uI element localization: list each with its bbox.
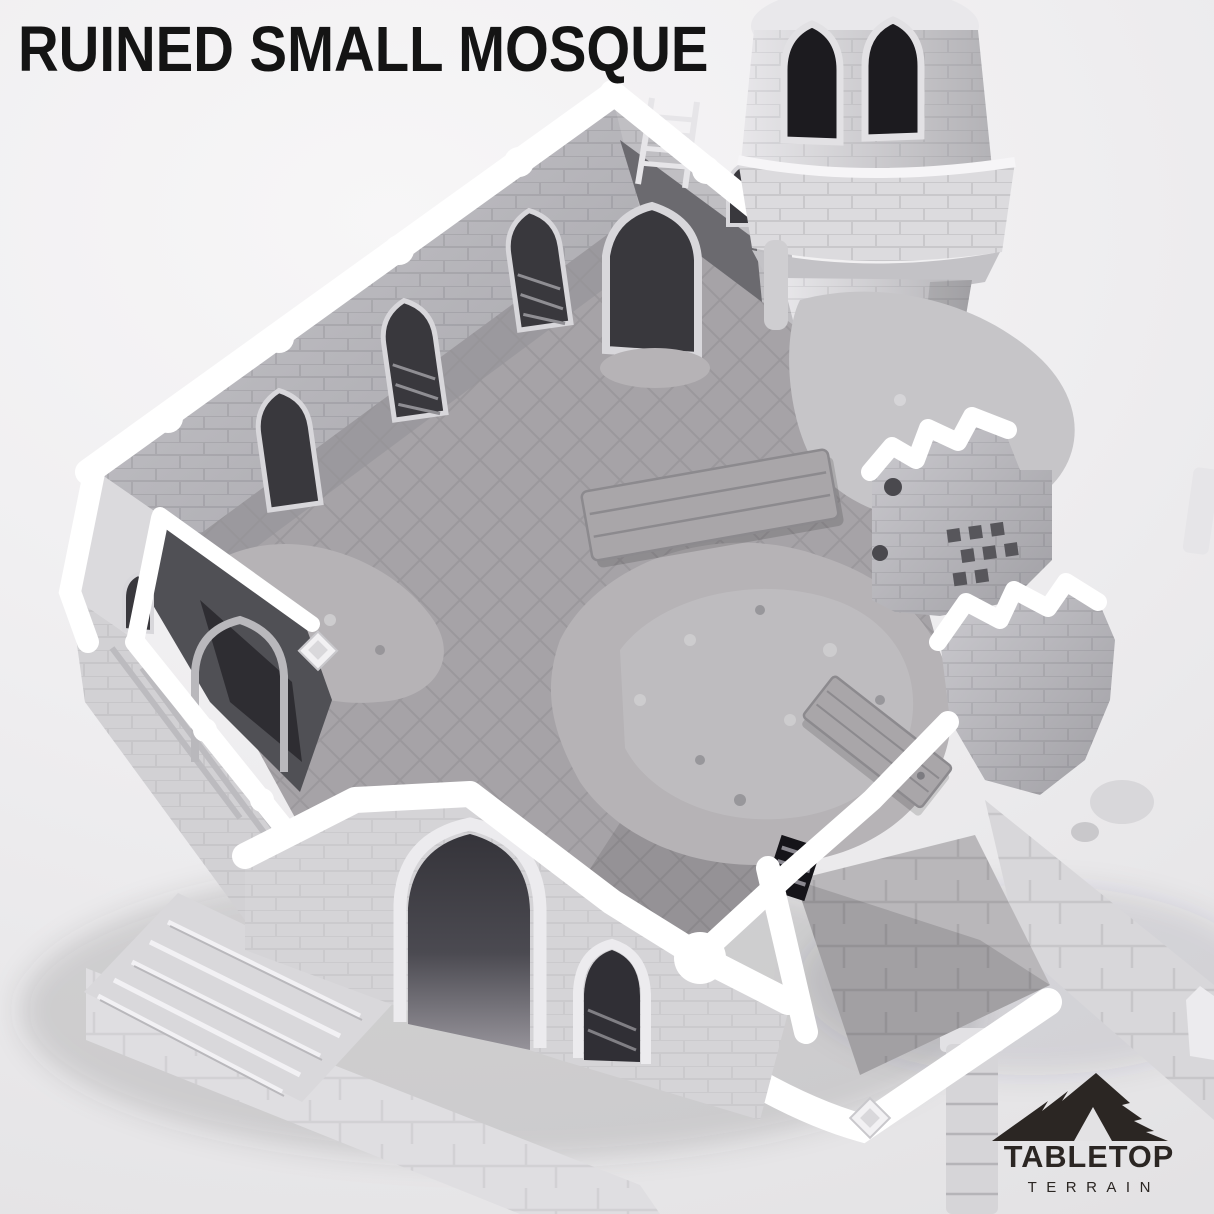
rubble-stone xyxy=(695,755,705,765)
lattice-hole xyxy=(946,528,961,543)
rubble-stone xyxy=(324,614,336,626)
brand-logo: TABLETOP TERRAIN xyxy=(978,1061,1200,1196)
pillar-cap xyxy=(692,156,720,184)
lattice-hole xyxy=(982,545,997,560)
peg-hole xyxy=(872,545,888,561)
lattice-hole xyxy=(990,522,1005,537)
broken-post xyxy=(1186,986,1214,1060)
wall-fragment-b xyxy=(938,580,1115,795)
rubble-stone xyxy=(875,695,885,705)
facade-window-opening xyxy=(584,950,640,1062)
corner-blob xyxy=(674,932,726,984)
brand-subname: TERRAIN xyxy=(988,1179,1201,1196)
rock xyxy=(1071,822,1099,842)
pillar-cap xyxy=(153,403,183,433)
lattice-hole xyxy=(974,569,989,584)
page-title: RUINED SMALL MOSQUE xyxy=(18,12,708,86)
pillar-cap xyxy=(193,718,217,742)
rubble-stone xyxy=(375,645,385,655)
rubble-stone xyxy=(684,634,696,646)
main-door-opening xyxy=(408,834,530,1050)
rubble-stone xyxy=(755,605,765,615)
rubble-stone xyxy=(634,694,646,706)
pillar-cap xyxy=(264,323,294,353)
pillar-cap xyxy=(504,147,534,177)
door-rubble xyxy=(600,348,710,388)
peg-hole xyxy=(884,478,902,496)
mosque-render xyxy=(0,0,1214,1214)
tower-window xyxy=(784,24,840,142)
rubble-stone xyxy=(894,394,906,406)
lattice-hole xyxy=(968,525,983,540)
product-image: RUINED SMALL MOSQUE TABLETOP TERRAIN xyxy=(0,0,1214,1214)
rubble-stone xyxy=(784,714,796,726)
porch-doorway xyxy=(606,206,698,356)
tower-drain xyxy=(764,240,788,330)
lattice-hole xyxy=(960,548,975,563)
rubble-stone xyxy=(734,794,746,806)
pillar-cap xyxy=(384,235,414,265)
rubble-stone xyxy=(823,643,837,657)
lattice-hole xyxy=(1004,542,1019,557)
rock xyxy=(1090,780,1154,824)
tower-window xyxy=(865,20,921,138)
pillar-cap xyxy=(250,788,274,812)
wall-shard xyxy=(1182,467,1214,556)
brand-name: TABLETOP xyxy=(979,1141,1199,1172)
mountain-logo-icon xyxy=(984,1061,1194,1145)
lattice-hole xyxy=(953,572,968,587)
